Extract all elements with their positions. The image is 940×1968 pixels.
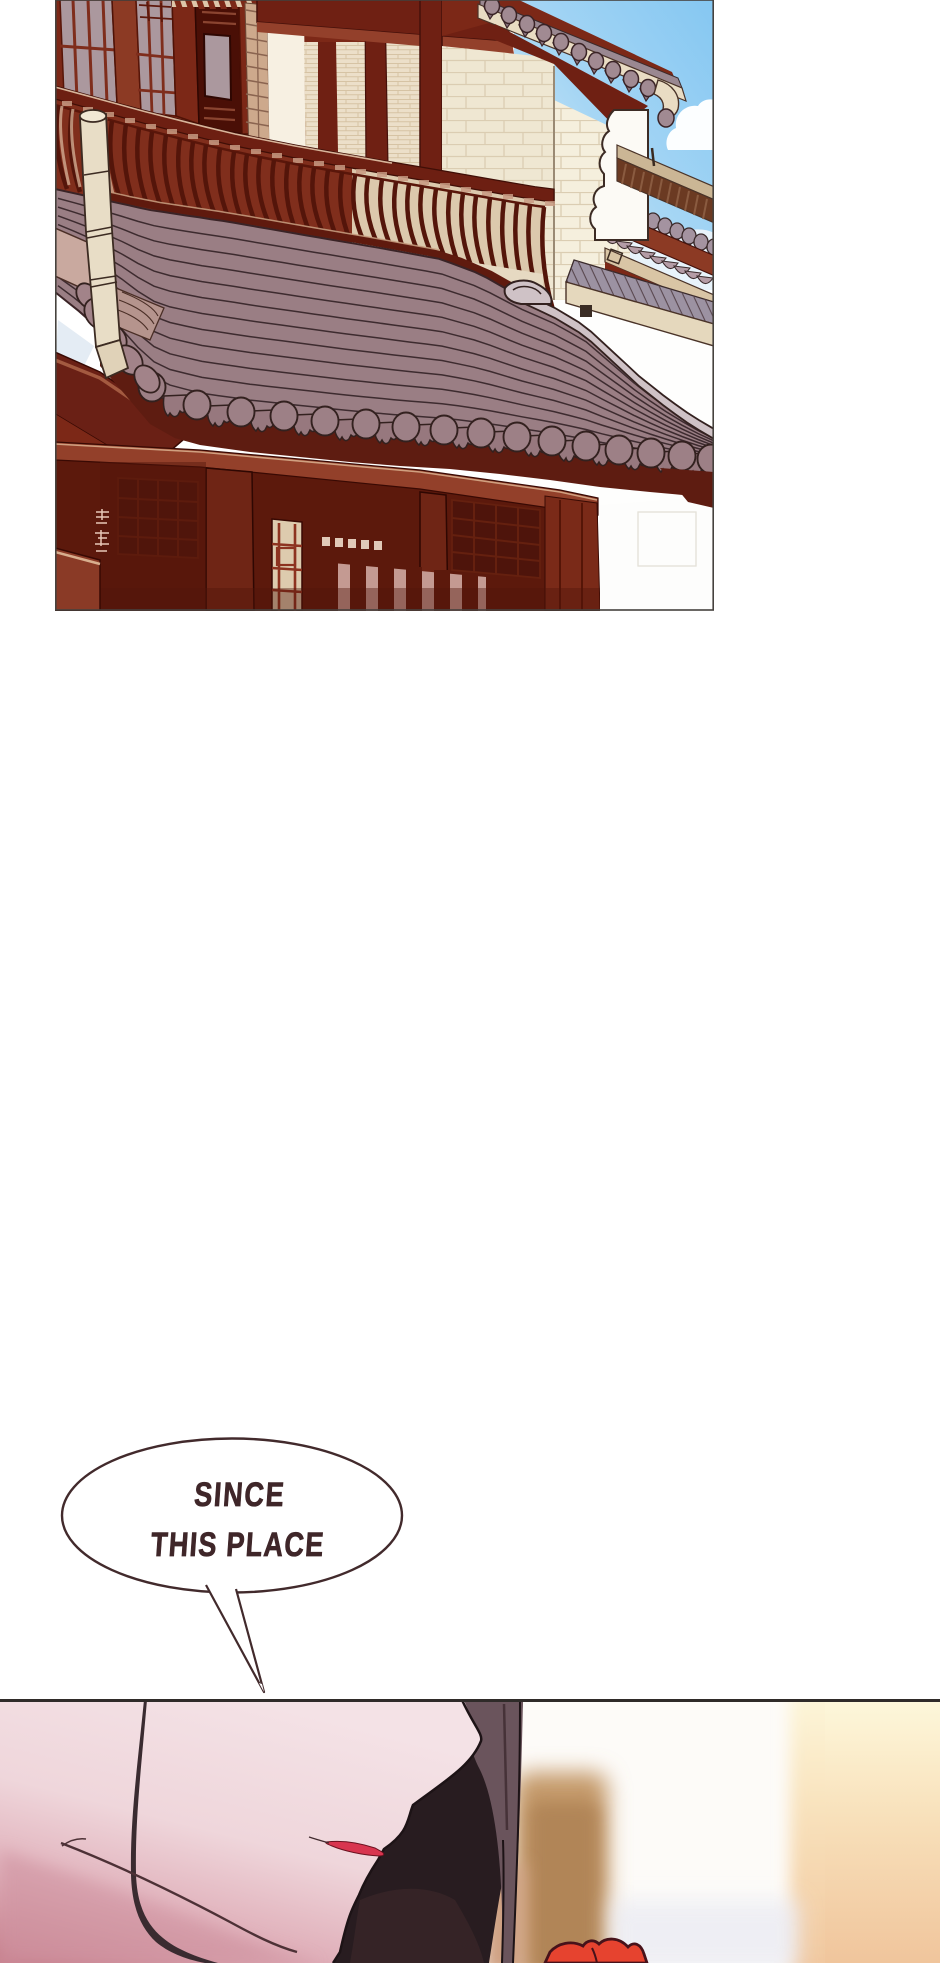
svg-text:THIS PLACE: THIS PLACE [150,1525,326,1564]
svg-text:SINCE: SINCE [193,1475,287,1514]
